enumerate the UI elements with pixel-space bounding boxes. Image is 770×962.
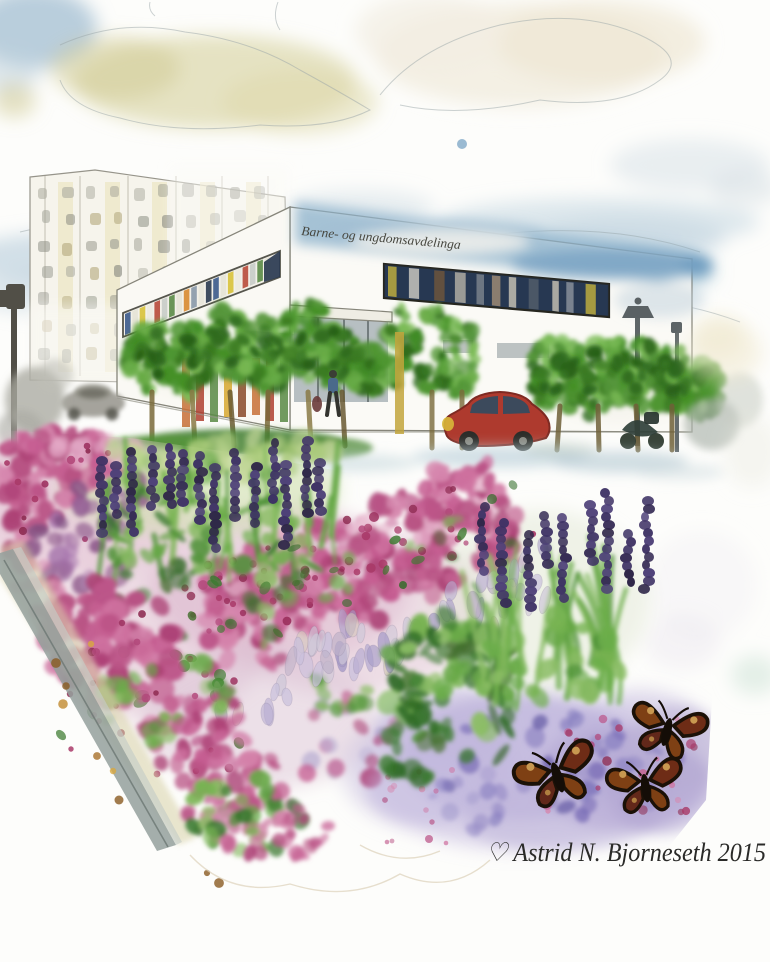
svg-text:♡ Astrid N. Bjorneseth 2015: ♡ Astrid N. Bjorneseth 2015 xyxy=(486,838,766,867)
